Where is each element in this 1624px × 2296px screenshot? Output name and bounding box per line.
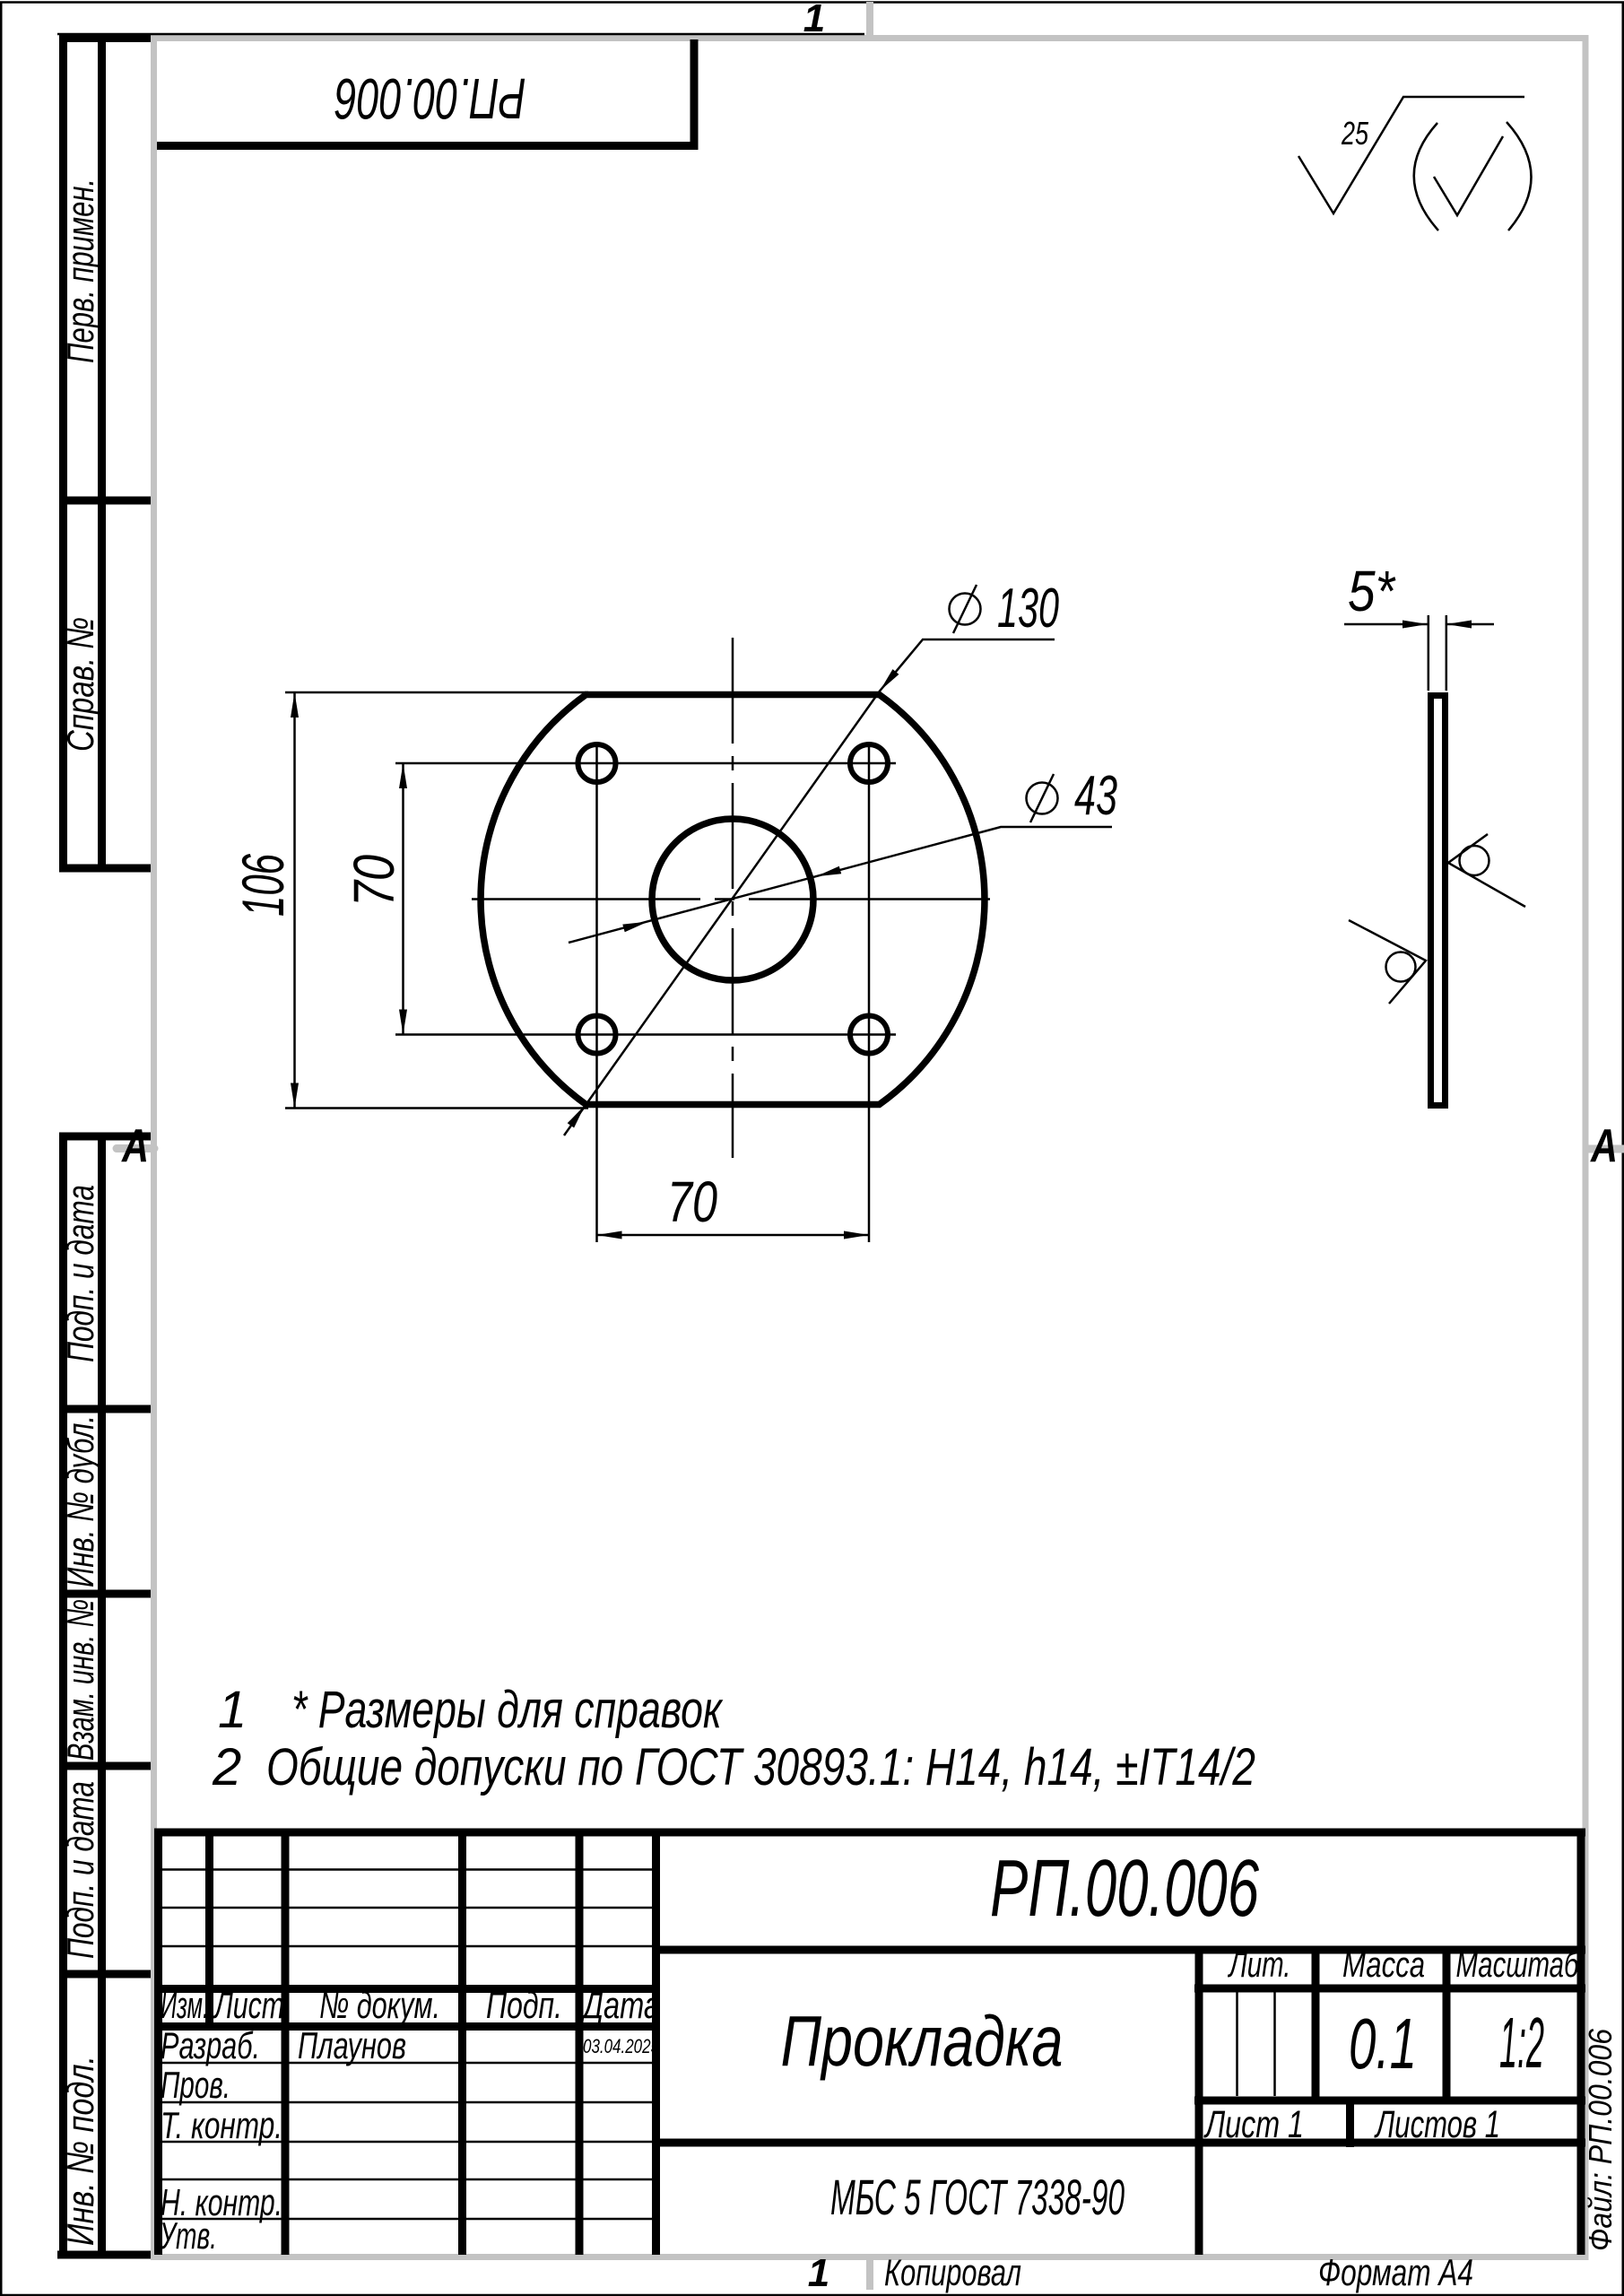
svg-text:Лист 1: Лист 1	[1203, 2103, 1304, 2146]
svg-text:А: А	[120, 1120, 149, 1172]
svg-text:5*: 5*	[1348, 559, 1396, 623]
svg-text:* Размеры для справок: * Размеры для справок	[291, 1681, 724, 1739]
svg-text:Лист: Лист	[213, 1984, 284, 2026]
svg-text:Изм.: Изм.	[161, 1984, 209, 2026]
svg-text:1: 1	[808, 2251, 829, 2295]
svg-text:Инв. № подл.: Инв. № подл.	[59, 2056, 101, 2246]
svg-text:Пров.: Пров.	[161, 2064, 230, 2106]
svg-text:РП.00.006: РП.00.006	[334, 66, 525, 131]
svg-text:1: 1	[803, 0, 825, 40]
svg-text:№ докум.: № докум.	[319, 1984, 440, 2026]
svg-text:Файл: РП.00.006: Файл: РП.00.006	[1582, 2028, 1619, 2251]
svg-text:Разраб.: Разраб.	[161, 2024, 260, 2066]
svg-text:Подп. и дата: Подп. и дата	[59, 1185, 101, 1362]
svg-text:Листов 1: Листов 1	[1374, 2103, 1500, 2146]
svg-text:Подп.: Подп.	[486, 1984, 562, 2026]
svg-text:0.1: 0.1	[1349, 2004, 1417, 2083]
svg-text:Прокладка: Прокладка	[781, 2001, 1064, 2081]
svg-text:Лит.: Лит.	[1227, 1945, 1290, 1985]
svg-text:МБС 5 ГОСТ 7338-90: МБС 5 ГОСТ 7338-90	[830, 2169, 1125, 2225]
svg-text:Масса: Масса	[1342, 1945, 1425, 1985]
svg-text:Общие допуски по ГОСТ 30893.1:: Общие допуски по ГОСТ 30893.1: H14, h14,…	[266, 1738, 1255, 1796]
svg-text:Дата: Дата	[580, 1984, 660, 2026]
svg-text:Подп. и дата: Подп. и дата	[59, 1781, 101, 1959]
svg-text:2: 2	[212, 1738, 241, 1796]
svg-text:Формат А4: Формат А4	[1318, 2251, 1473, 2293]
svg-text:1:2: 1:2	[1499, 2003, 1544, 2083]
svg-text:130: 130	[997, 578, 1059, 639]
svg-text:70: 70	[667, 1170, 717, 1234]
svg-text:1: 1	[218, 1681, 247, 1739]
svg-text:03.04.2025: 03.04.2025	[583, 2035, 660, 2057]
svg-text:Инв. № дубл.: Инв. № дубл.	[59, 1415, 101, 1587]
svg-text:Утв.: Утв.	[159, 2214, 217, 2257]
svg-text:Т. контр.: Т. контр.	[161, 2104, 282, 2146]
svg-text:43: 43	[1074, 765, 1117, 827]
svg-text:А: А	[1589, 1120, 1618, 1172]
svg-text:Копировал: Копировал	[884, 2251, 1021, 2293]
svg-text:Плаунов: Плаунов	[298, 2024, 406, 2066]
svg-text:25: 25	[1341, 115, 1368, 152]
svg-text:70: 70	[342, 855, 406, 907]
svg-text:Справ. №: Справ. №	[59, 617, 101, 752]
svg-text:Перв. примен.: Перв. примен.	[59, 178, 101, 363]
svg-text:106: 106	[230, 854, 296, 917]
svg-text:Взам. инв. №: Взам. инв. №	[59, 1599, 101, 1761]
svg-text:Масштаб: Масштаб	[1456, 1945, 1580, 1985]
svg-text:РП.00.006: РП.00.006	[990, 1844, 1260, 1934]
